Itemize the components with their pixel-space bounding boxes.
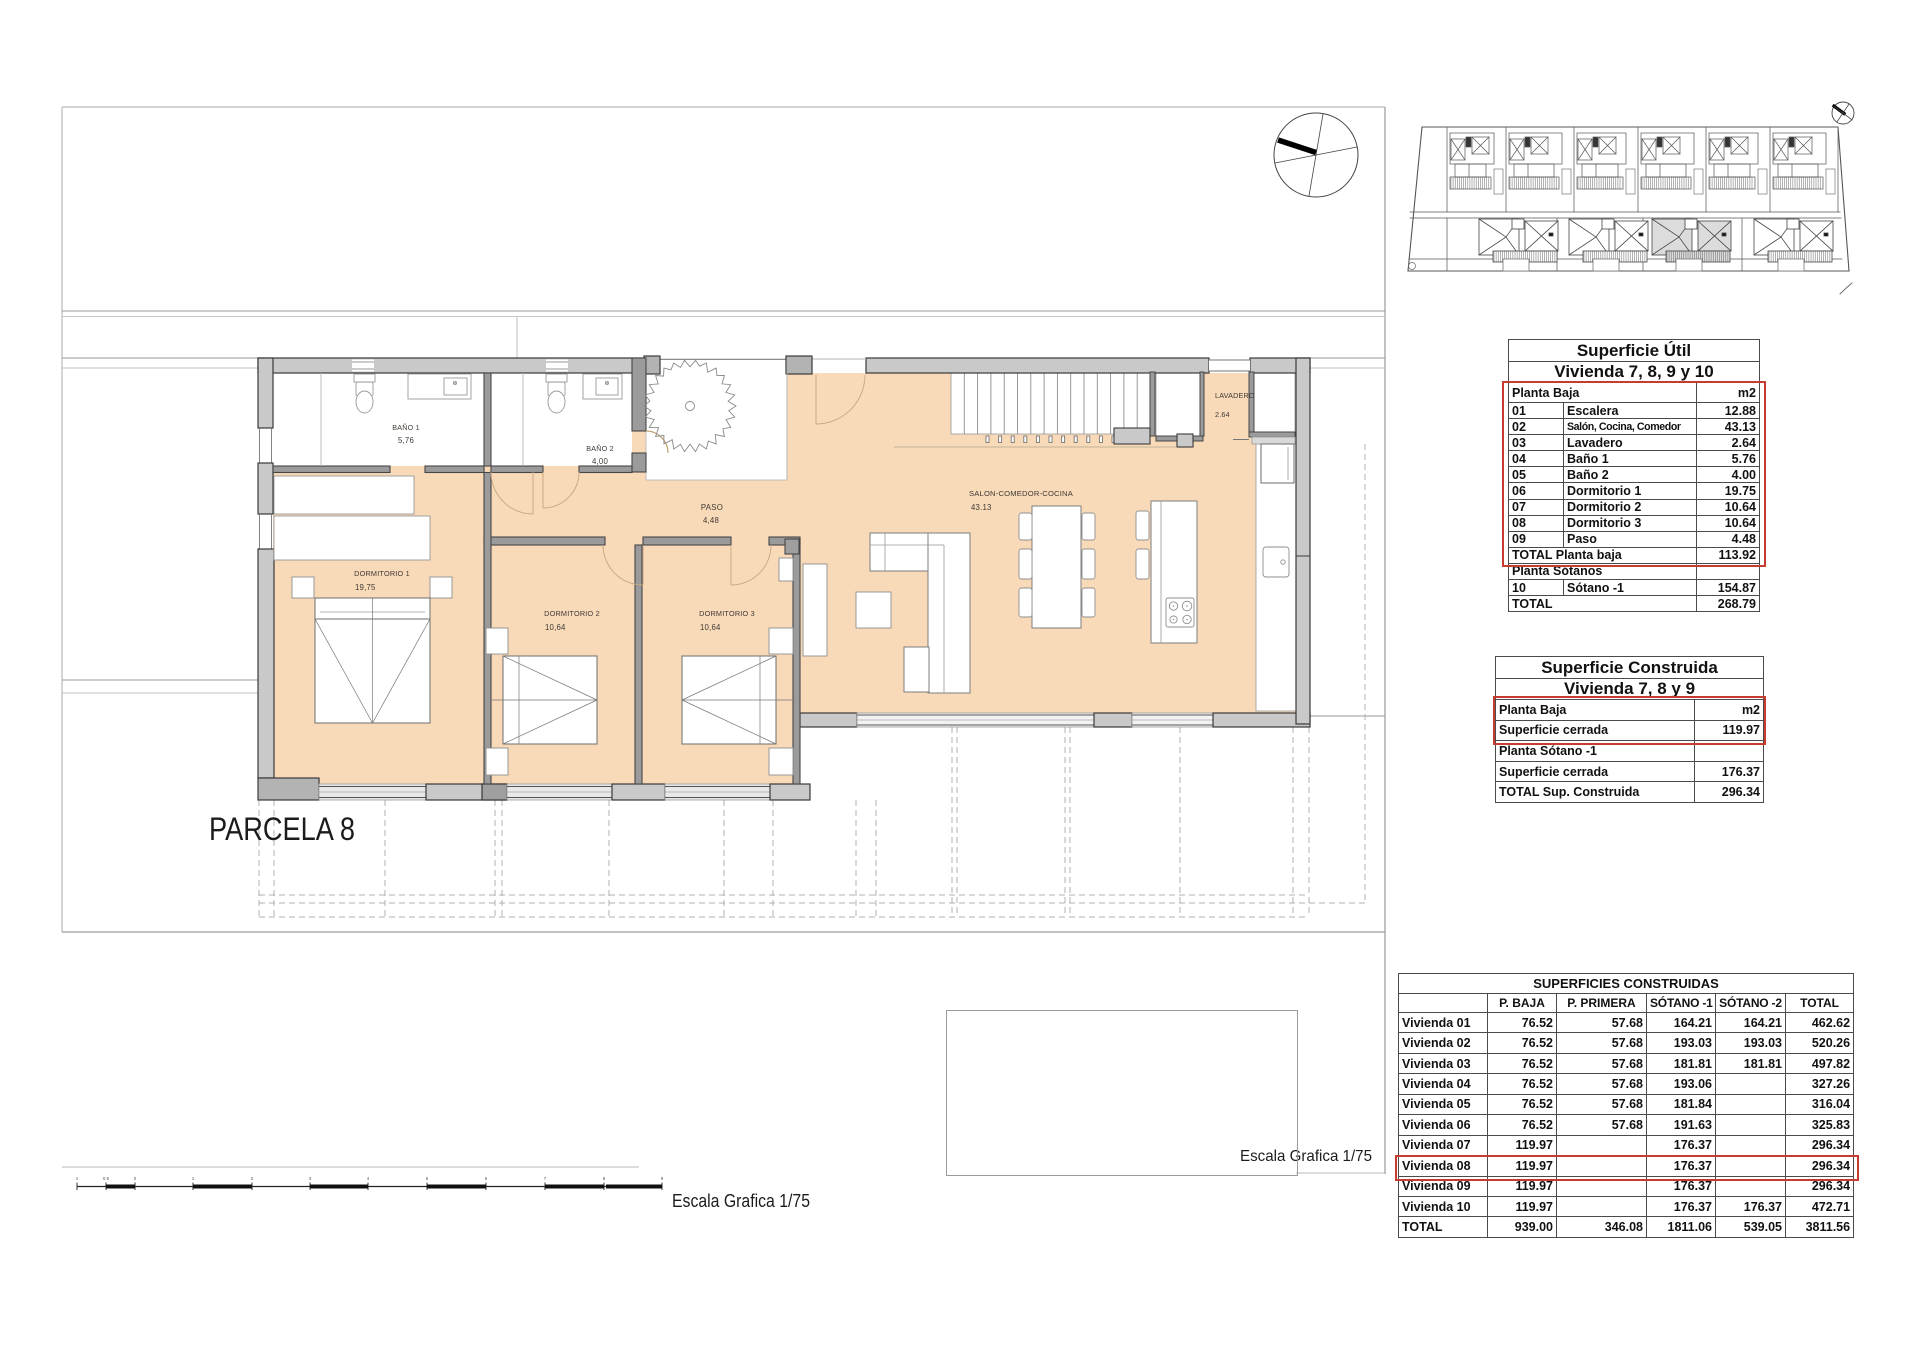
svg-text:6: 6 xyxy=(485,1176,488,1181)
svg-text:4,48: 4,48 xyxy=(703,516,719,525)
svg-text:10,64: 10,64 xyxy=(700,623,721,632)
svg-text:1: 1 xyxy=(192,1176,195,1181)
svg-text:BAÑO 2: BAÑO 2 xyxy=(586,444,614,453)
svg-text:1: 1 xyxy=(76,1176,79,1181)
svg-text:BAÑO 1: BAÑO 1 xyxy=(392,423,420,432)
svg-text:0: 0 xyxy=(134,1176,137,1181)
svg-text:4,00: 4,00 xyxy=(592,457,608,466)
svg-text:9: 9 xyxy=(661,1176,664,1181)
svg-text:5,76: 5,76 xyxy=(398,436,414,445)
svg-text:DORMITORIO 2: DORMITORIO 2 xyxy=(544,609,600,618)
svg-text:5: 5 xyxy=(426,1176,429,1181)
svg-text:19,75: 19,75 xyxy=(355,583,376,592)
svg-text:DORMITORIO 1: DORMITORIO 1 xyxy=(354,569,410,578)
svg-text:0.5: 0.5 xyxy=(103,1176,110,1181)
svg-text:7: 7 xyxy=(544,1176,547,1181)
svg-text:SALON-COMEDOR-COCINA: SALON-COMEDOR-COCINA xyxy=(969,489,1074,498)
svg-text:PASO: PASO xyxy=(701,503,723,512)
svg-text:43.13: 43.13 xyxy=(971,503,992,512)
svg-text:Escala Grafica 1/75: Escala Grafica 1/75 xyxy=(672,1191,810,1211)
svg-text:2: 2 xyxy=(251,1176,254,1181)
svg-text:DORMITORIO 3: DORMITORIO 3 xyxy=(699,609,755,618)
svg-text:10,64: 10,64 xyxy=(545,623,566,632)
svg-text:LAVADERO: LAVADERO xyxy=(1215,391,1255,400)
svg-text:PARCELA 8: PARCELA 8 xyxy=(209,811,355,847)
svg-text:8: 8 xyxy=(603,1176,606,1181)
svg-text:3: 3 xyxy=(309,1176,312,1181)
svg-text:4: 4 xyxy=(367,1176,370,1181)
svg-text:2.64: 2.64 xyxy=(1215,410,1230,419)
